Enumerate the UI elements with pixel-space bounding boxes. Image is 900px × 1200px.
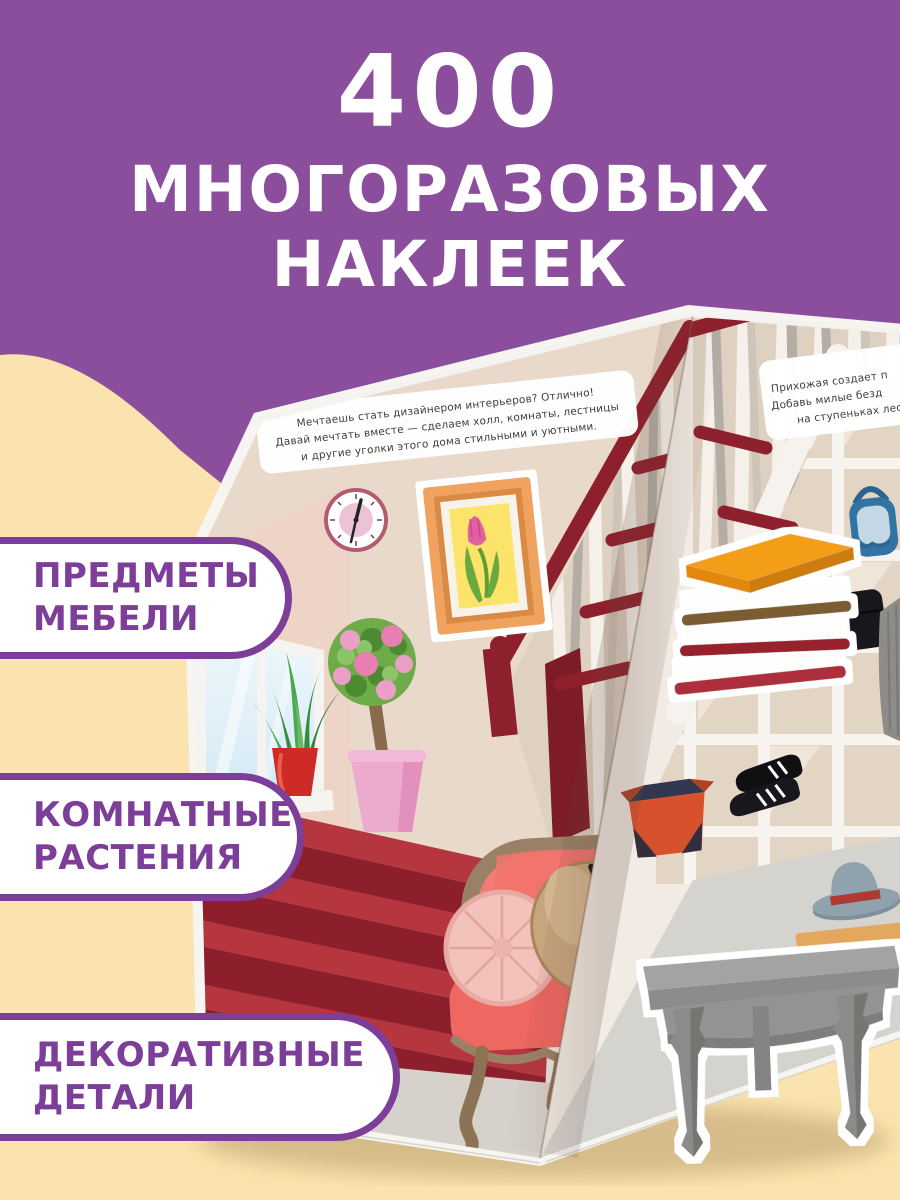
badge-houseplants-line2: РАСТЕНИЯ — [33, 837, 297, 880]
badge-decor-line2: ДЕТАЛИ — [33, 1077, 393, 1120]
title-word-1: МНОГОРАЗОВЫХ — [0, 158, 900, 221]
title-word-2: НАКЛЕЕК — [0, 233, 900, 296]
wall-clock — [326, 490, 386, 550]
title-count: 400 — [0, 42, 900, 142]
poster: Мечтаешь стать дизайнером интерьеров? От… — [0, 0, 900, 1200]
badge-houseplants-line1: КОМНАТНЫЕ — [33, 794, 297, 837]
badge-decor-line1: ДЕКОРАТИВНЫЕ — [33, 1034, 393, 1077]
poster-title: 400 МНОГОРАЗОВЫХ НАКЛЕЕК — [0, 42, 900, 296]
badge-furniture-line2: МЕБЕЛИ — [33, 598, 285, 641]
table-back-leg — [752, 1006, 771, 1091]
badge-houseplants: КОМНАТНЫЕ РАСТЕНИЯ — [0, 773, 304, 901]
badge-decor: ДЕКОРАТИВНЫЕ ДЕТАЛИ — [0, 1013, 400, 1141]
tulip-picture-sticker — [423, 477, 546, 635]
badge-furniture: ПРЕДМЕТЫ МЕБЕЛИ — [0, 537, 292, 659]
badge-furniture-line1: ПРЕДМЕТЫ — [33, 555, 285, 598]
